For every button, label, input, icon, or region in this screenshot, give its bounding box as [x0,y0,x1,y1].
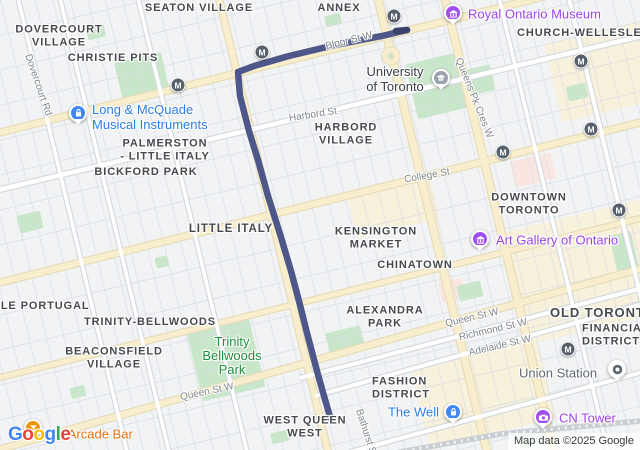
subway-station-marker-1[interactable]: M [171,78,186,93]
poi-pin-university-of-toronto[interactable] [432,69,450,87]
area-label-kensington-market: KENSINGTONMARKET [335,226,417,251]
area-label-trinity-bellwoods: TRINITY-BELLWOODS [84,316,216,329]
subway-station-marker-5[interactable]: M [574,54,589,69]
google-logo-letter: o [22,424,33,445]
bag-icon [73,119,83,125]
grad-icon [436,84,446,90]
museum-icon [475,234,486,245]
poi-label-royal-ontario-museum[interactable]: Royal Ontario Museum [468,7,601,22]
google-logo-letter: e [60,424,70,445]
google-logo[interactable]: Google [8,424,70,446]
street-label-bathurst-st: Bathurst St [353,408,379,450]
subway-station-marker-7[interactable]: M [612,203,627,218]
area-label-chinatown: CHINATOWN [377,259,453,272]
area-label-church-wellesley: CHURCH-WELLESLEY [517,27,640,40]
park-label-trinity-bellwoods-park: TrinityBellwoodsPark [202,335,261,377]
camera-icon [538,412,549,423]
poi-pin-union-station[interactable] [608,360,626,378]
area-label-palmerston-little-italy: PALMERSTON- LITTLE ITALY [120,138,210,163]
subway-station-marker-8[interactable]: M [561,342,576,357]
camera-icon [538,423,548,429]
bag-icon [448,418,458,424]
poi-pin-royal-ontario-museum[interactable] [444,4,462,22]
street-label-queens-pk-cres-w: Queens Pk Cres W [453,56,495,139]
subway-station-marker-2[interactable]: M [255,45,270,60]
area-label-dovercourt-village: DOVERCOURTVILLAGE [15,24,102,49]
poi-label-art-gallery-of-ontario[interactable]: Art Gallery of Ontario [496,233,618,248]
google-logo-letter: g [45,424,56,445]
area-label-harbord-village: HARBORDVILLAGE [315,122,378,147]
area-label-downtown-toronto: DOWNTOWNTORONTO [491,192,566,217]
google-logo-letter: o [33,424,44,445]
area-label-seaton-village: SEATON VILLAGE [145,2,253,15]
poi-pin-the-well[interactable] [444,403,462,421]
museum-icon [475,245,485,251]
area-label-bickford-park: BICKFORD PARK [94,166,197,179]
poi-label-long-and-mcquade[interactable]: Long & McQuadeMusical Instruments [92,102,208,132]
subway-station-marker-3[interactable]: M [387,9,402,24]
museum-icon [448,8,459,19]
area-label-old-toronto: OLD TORONTO [550,307,640,320]
area-label-west-queen-west: WEST QUEENWEST [264,415,347,440]
station-icon [612,375,622,381]
google-logo-letter: G [8,424,22,445]
area-label-little-italy: LITTLE ITALY [189,223,273,236]
poi-pin-art-gallery-of-ontario[interactable] [471,230,489,248]
poi-pin-long-and-mcquade[interactable] [69,104,87,122]
subway-station-marker-6[interactable]: M [584,122,599,137]
map-canvas[interactable]: DOVERCOURTVILLAGESEATON VILLAGEANNEXCHRI… [0,0,640,450]
museum-icon [448,19,458,25]
area-label-alexandra-park: ALEXANDRAPARK [346,305,423,330]
bag-icon [73,108,84,119]
area-label-beaconsfield-village: BEACONSFIELDVILLAGE [65,346,163,371]
area-label-fashion-district: FASHIONDISTRICT [372,376,430,401]
area-label-financial-district: FINANCIALDISTRICT [582,323,640,348]
poi-label-university-of-toronto[interactable]: Universityof Toronto [366,64,424,94]
poi-label-cn-tower[interactable]: CN Tower [559,411,616,426]
street-label-college-st: College St [403,167,450,186]
bag-icon [448,407,459,418]
map-overlay: DOVERCOURTVILLAGESEATON VILLAGEANNEXCHRI… [0,0,640,450]
poi-label-union-station[interactable]: Union Station [519,366,597,381]
poi-pin-cn-tower[interactable] [534,408,552,426]
poi-label-the-well[interactable]: The Well [388,405,439,420]
grad-icon [435,72,447,84]
area-label-little-portugal: LITTLE PORTUGAL [0,300,90,313]
subway-station-marker-4[interactable]: M [496,145,511,160]
street-label-queen-st-w-west: Queen St W [179,381,235,403]
station-icon [611,363,624,376]
area-label-christie-pits: CHRISTIE PITS [68,52,159,65]
area-label-annex: ANNEX [317,2,360,15]
street-label-dovercourt-rd: Dovercourt Rd [22,53,53,118]
street-label-bloor-st-w: Bloor St W [324,30,373,52]
map-attribution: Map data ©2025 Google [508,433,640,450]
